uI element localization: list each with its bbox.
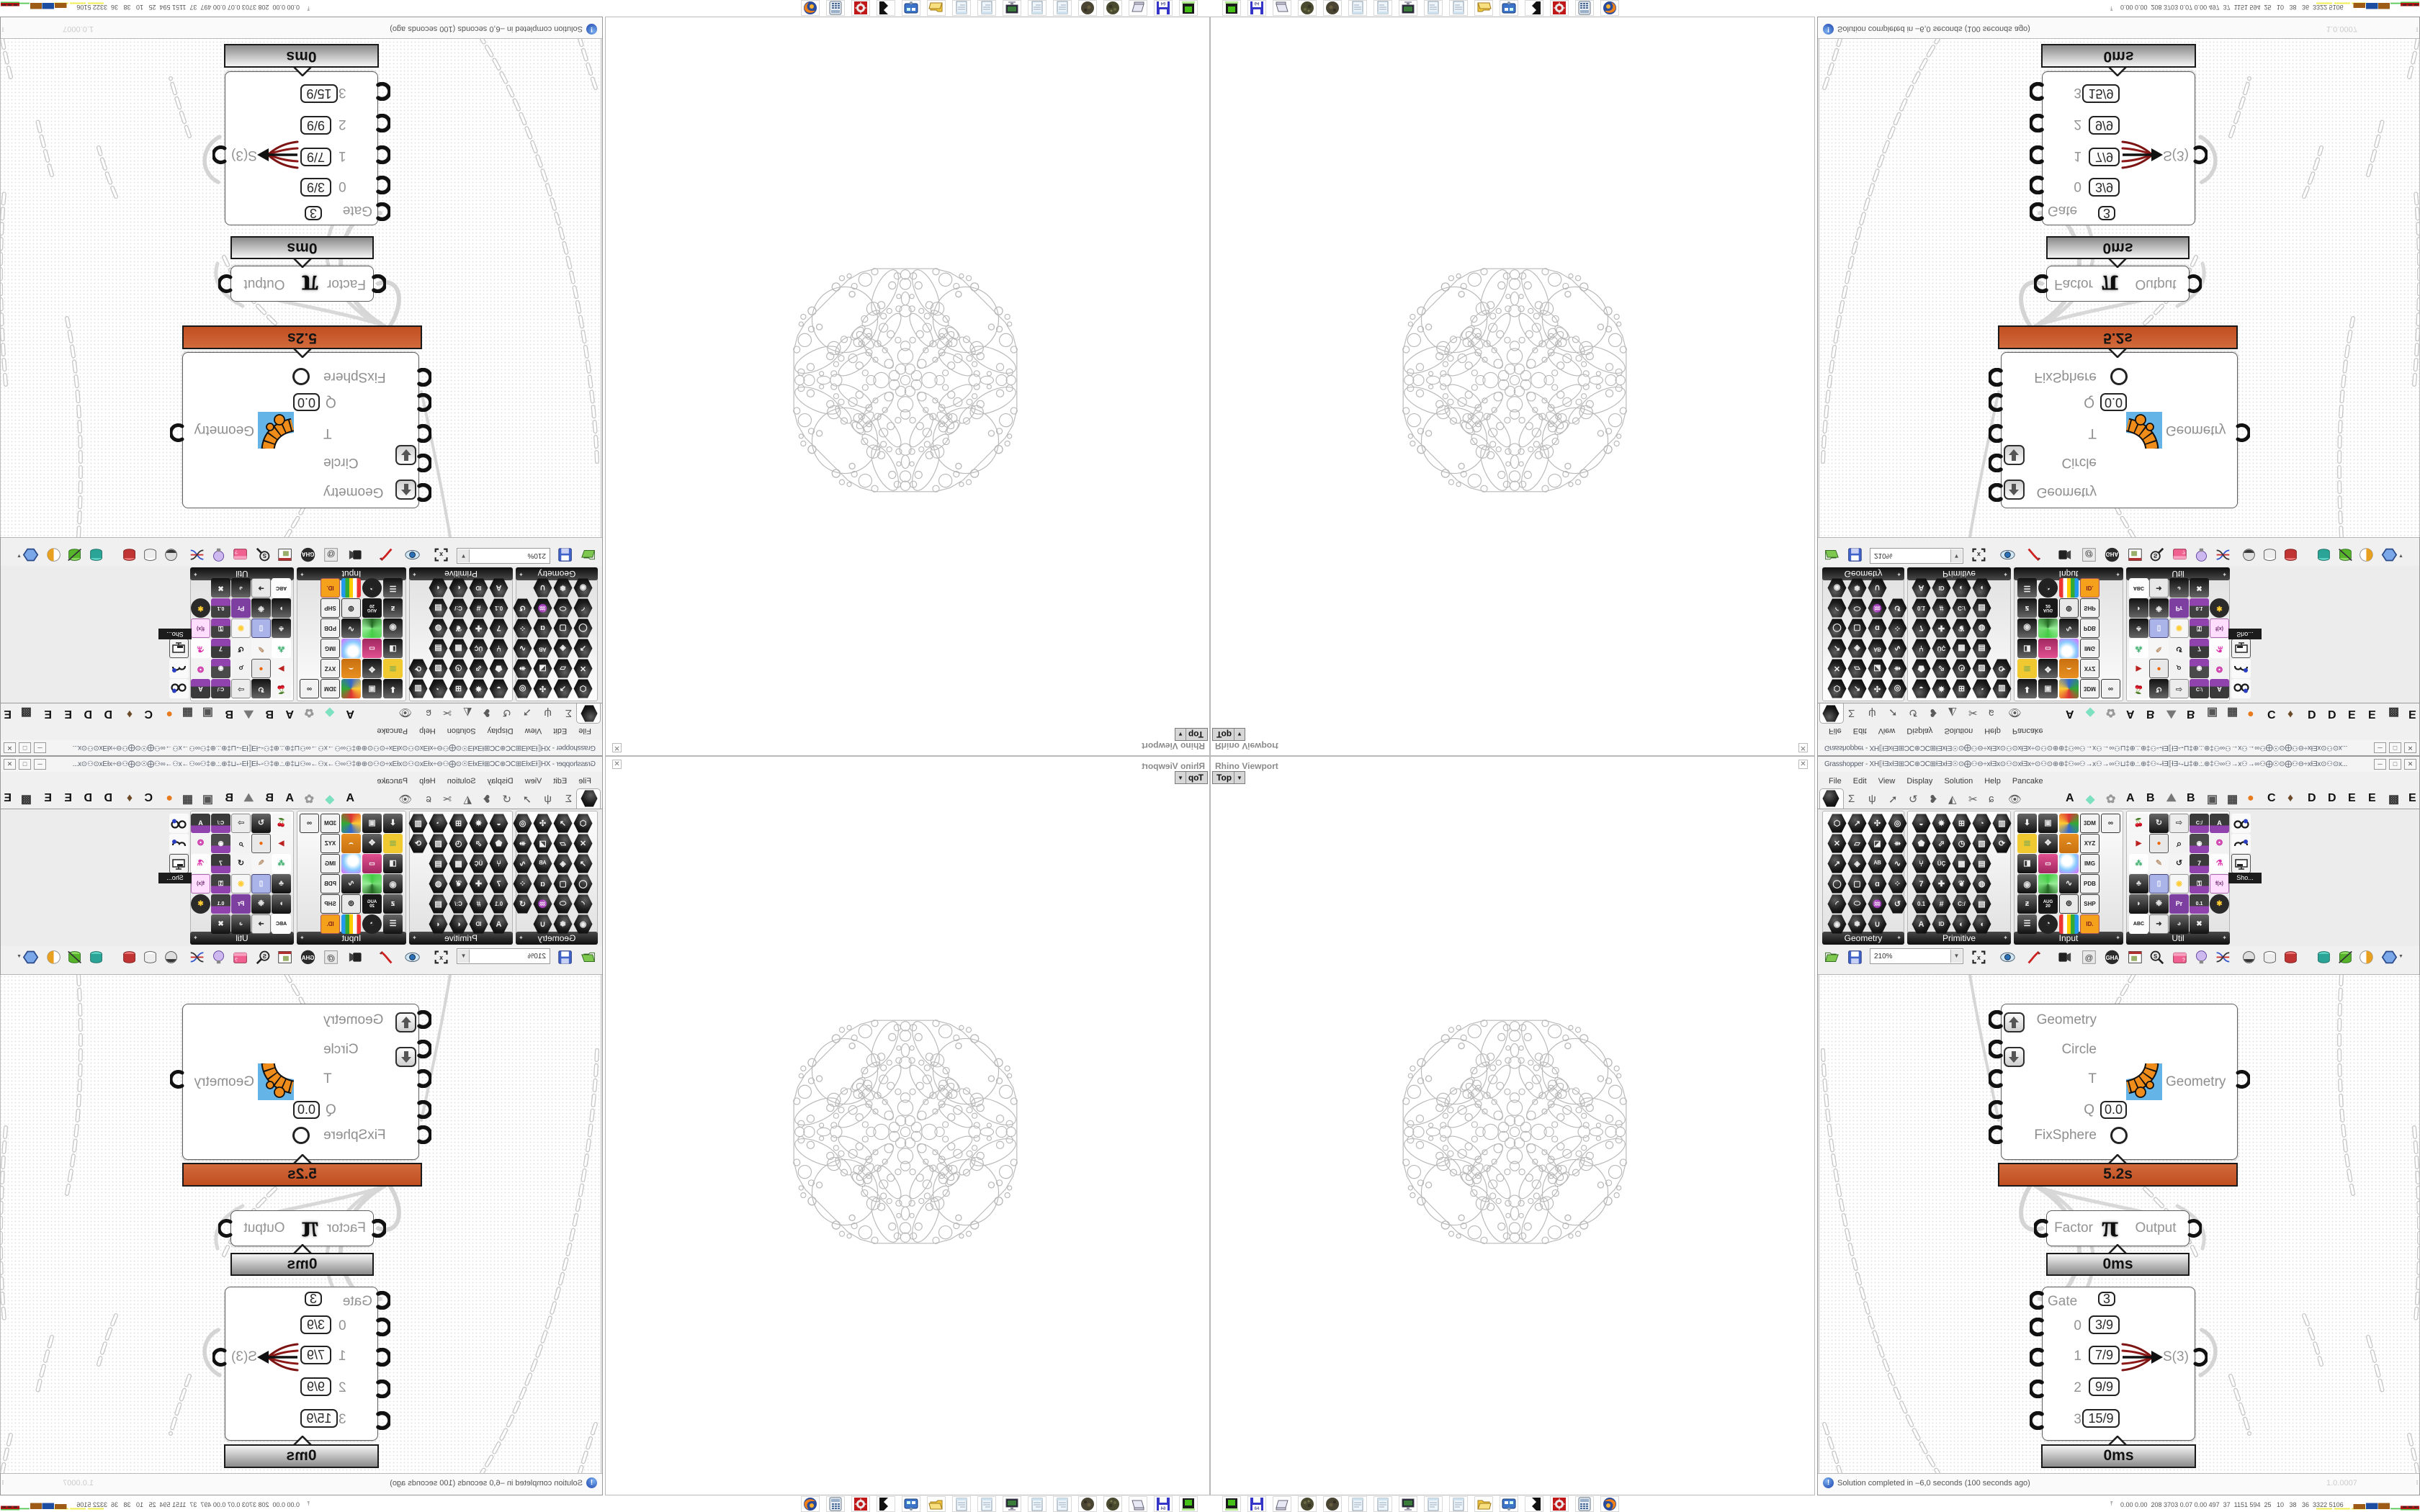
svg-text:?: ?: [2182, 549, 2185, 554]
svg-text:S: S: [263, 552, 266, 559]
svg-text:?: ?: [235, 549, 238, 554]
svg-text:S: S: [2154, 953, 2157, 960]
svg-text:x: x: [439, 954, 443, 961]
svg-text:@: @: [327, 954, 336, 963]
svg-text:?: ?: [2182, 958, 2185, 963]
svg-text:GHA: GHA: [2106, 955, 2119, 961]
svg-text:S: S: [2154, 552, 2157, 559]
svg-text:64: 64: [1255, 1507, 1260, 1511]
svg-text:x: x: [439, 551, 443, 558]
svg-text:x: x: [1977, 551, 1981, 558]
svg-text:@: @: [2085, 954, 2094, 963]
svg-text:x: x: [1977, 954, 1981, 961]
svg-text:?: ?: [235, 958, 238, 963]
svg-text:64: 64: [1160, 1507, 1165, 1511]
svg-text:64: 64: [1255, 1, 1260, 5]
svg-text:S: S: [263, 953, 266, 960]
svg-text:GHA: GHA: [301, 551, 314, 557]
svg-text:GHA: GHA: [2106, 551, 2119, 557]
svg-text:64: 64: [1160, 1, 1165, 5]
svg-text:@: @: [327, 549, 336, 558]
svg-text:GHA: GHA: [301, 955, 314, 961]
svg-text:@: @: [2085, 549, 2094, 558]
